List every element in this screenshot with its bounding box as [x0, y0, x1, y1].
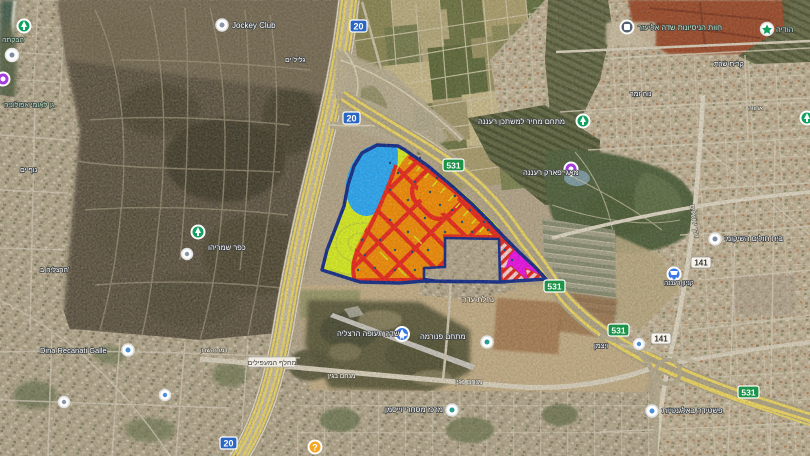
svg-text:אחוזה: אחוזה	[748, 106, 763, 112]
svg-text:הרצליה ב': הרצליה ב'	[40, 266, 69, 274]
svg-text:141: 141	[694, 259, 708, 268]
svg-text:גליל ים: גליל ים	[285, 56, 305, 64]
svg-text:שדה תעופה הרצליה: שדה תעופה הרצליה	[337, 329, 400, 338]
svg-text:141: 141	[654, 335, 668, 344]
svg-text:נוף ים: נוף ים	[20, 167, 38, 174]
svg-text:מחלף המעפילים: מחלף המעפילים	[248, 359, 297, 367]
svg-text:Dina Recanati Galle: Dina Recanati Galle	[40, 346, 107, 355]
svg-text:גן לאומי אפולוניה: גן לאומי אפולוניה	[4, 101, 54, 109]
svg-text:20: 20	[223, 439, 233, 449]
svg-text:531: 531	[611, 326, 625, 336]
svg-text:קניון רעננה: קניון רעננה	[664, 280, 694, 287]
svg-text:531: 531	[741, 388, 755, 398]
svg-text:מתחם פנורמה: מתחם פנורמה	[420, 332, 466, 341]
svg-text:ויצמן: ויצמן	[594, 343, 608, 350]
svg-text:קרית שרת: קרית שרת	[714, 61, 744, 68]
svg-text:רמת השרון: רמת השרון	[200, 348, 227, 354]
svg-text:חוות הניסיונות שדה אליעזר: חוות הניסיונות שדה אליעזר	[638, 23, 722, 32]
svg-text:מנחם בגין: מנחם בגין	[328, 373, 356, 380]
svg-text:20: 20	[346, 114, 356, 124]
svg-text:נחלת עדה: נחלת עדה	[462, 295, 494, 304]
svg-text:20: 20	[353, 22, 363, 32]
svg-text:מאגי פארק רעננה: מאגי פארק רעננה	[523, 168, 579, 177]
svg-text:531: 531	[547, 282, 561, 292]
svg-text:מנחם בגין: מנחם בגין	[455, 379, 483, 386]
svg-text:בית חולים השיקומי: בית חולים השיקומי	[724, 234, 784, 243]
svg-text:כפר שמריהו: כפר שמריהו	[208, 243, 246, 252]
svg-text:פשטידה באלגנטיות: פשטידה באלגנטיות	[662, 406, 723, 415]
svg-text:הבקתה: הבקתה	[2, 37, 24, 44]
svg-text:?: ?	[312, 443, 318, 453]
svg-text:531: 531	[446, 161, 460, 171]
svg-text:מתחם מחיר למשתכן רעננה: מתחם מחיר למשתכן רעננה	[478, 117, 565, 126]
svg-text:מרכז מסחרי וייסמן: מרכז מסחרי וייסמן	[385, 405, 443, 414]
svg-text:Jockey Club: Jockey Club	[232, 21, 276, 30]
svg-text:נוה זמר: נוה זמר	[630, 91, 652, 98]
svg-text:הודיה: הודיה	[776, 25, 794, 34]
